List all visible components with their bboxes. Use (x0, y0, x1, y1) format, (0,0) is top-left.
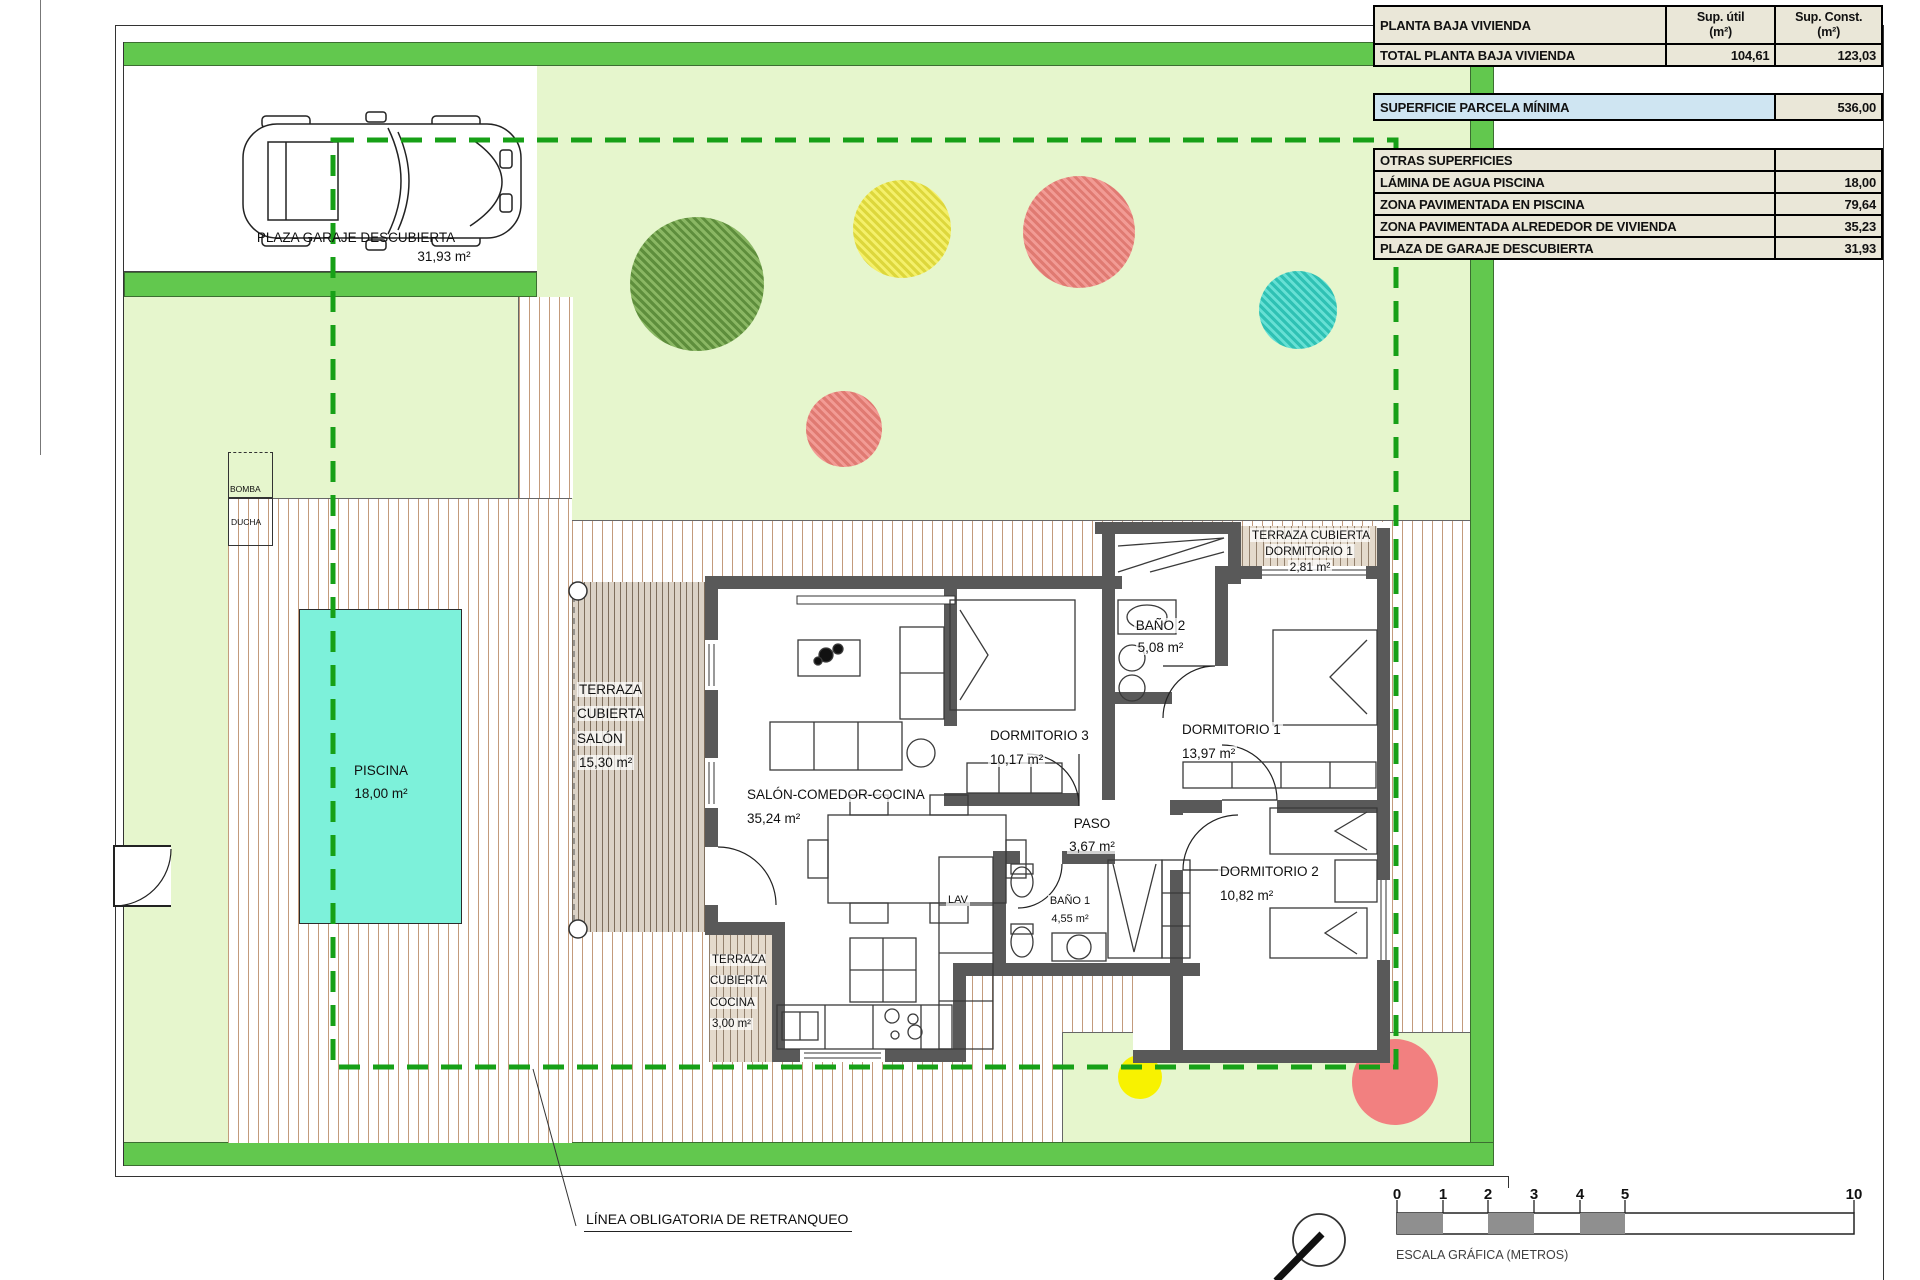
label-terraza-cocina: TERRAZA CUBIERTA COCINA3,00 m² (710, 950, 774, 1035)
label-dorm3: DORMITORIO 310,17 m² (988, 724, 1108, 773)
site-plan-sheet: TERRAZA CUBIERTA SALÓN15,30 m² SALÓN-COM… (0, 0, 1920, 1280)
otras-title: OTRAS SUPERFICIES (1374, 149, 1775, 171)
leader-line (533, 1069, 576, 1226)
parcela-value: 536,00 (1775, 94, 1882, 120)
scale-tick-1: 1 (1439, 1186, 1447, 1203)
north-arrow-icon (1276, 1214, 1345, 1280)
label-garage-area: 31,93 m² (398, 248, 490, 267)
setback-label: LÍNEA OBLIGATORIA DE RETRANQUEO (584, 1211, 852, 1232)
bomba-box: BOMBA (228, 452, 273, 498)
label-bano2: BAÑO 25,08 m² (1118, 615, 1203, 658)
row-plaza-garaje-value: 31,93 (1775, 237, 1882, 259)
label-piscina: PISCINA18,00 m² (312, 760, 450, 806)
otras-title-empty (1775, 149, 1882, 171)
label-terraza-salon: TERRAZA CUBIERTA SALÓN15,30 m² (577, 678, 682, 775)
table-title: PLANTA BAJA VIVIENDA (1374, 6, 1666, 44)
row-zona-vivienda-value: 35,23 (1775, 215, 1882, 237)
scale-tick-0: 0 (1393, 1186, 1401, 1203)
row-lamina-label: LÁMINA DE AGUA PISCINA (1374, 171, 1775, 193)
col-header-const: Sup. Const.(m²) (1775, 6, 1882, 44)
label-bano1: BAÑO 14,55 m² (1030, 893, 1110, 928)
total-row-label: TOTAL PLANTA BAJA VIVIENDA (1374, 44, 1666, 66)
scale-tick-4: 4 (1576, 1186, 1584, 1203)
row-lamina-value: 18,00 (1775, 171, 1882, 193)
label-garage: PLAZA GARAJE DESCUBIERTA (222, 229, 490, 248)
row-plaza-garaje-label: PLAZA DE GARAJE DESCUBIERTA (1374, 237, 1775, 259)
col-header-util: Sup. útil(m²) (1666, 6, 1776, 44)
label-dorm2: DORMITORIO 210,82 m² (1218, 860, 1358, 909)
total-util-value: 104,61 (1666, 44, 1776, 66)
scale-bar (1397, 1200, 1854, 1234)
scale-tick-10: 10 (1846, 1186, 1863, 1203)
label-salon: SALÓN-COMEDOR-COCINA35,24 m² (745, 783, 955, 832)
parcela-row-label: SUPERFICIE PARCELA MÍNIMA (1374, 94, 1775, 120)
row-zona-piscina-label: ZONA PAVIMENTADA EN PISCINA (1374, 193, 1775, 215)
label-lav: LAV (946, 892, 970, 910)
row-zona-vivienda-label: ZONA PAVIMENTADA ALREDEDOR DE VIVIENDA (1374, 215, 1775, 237)
scale-tick-3: 3 (1530, 1186, 1538, 1203)
scale-tick-5: 5 (1621, 1186, 1629, 1203)
scale-tick-2: 2 (1484, 1186, 1492, 1203)
label-terraza-dorm1: TERRAZA CUBIERTA DORMITORIO 12,81 m² (1236, 527, 1384, 576)
scale-caption: ESCALA GRÁFICA (METROS) (1396, 1248, 1568, 1263)
label-dorm1: DORMITORIO 113,97 m² (1180, 718, 1320, 767)
label-paso: PASO3,67 m² (1058, 813, 1126, 859)
row-zona-piscina-value: 79,64 (1775, 193, 1882, 215)
ducha-box: DUCHA (228, 498, 273, 546)
total-const-value: 123,03 (1775, 44, 1882, 66)
